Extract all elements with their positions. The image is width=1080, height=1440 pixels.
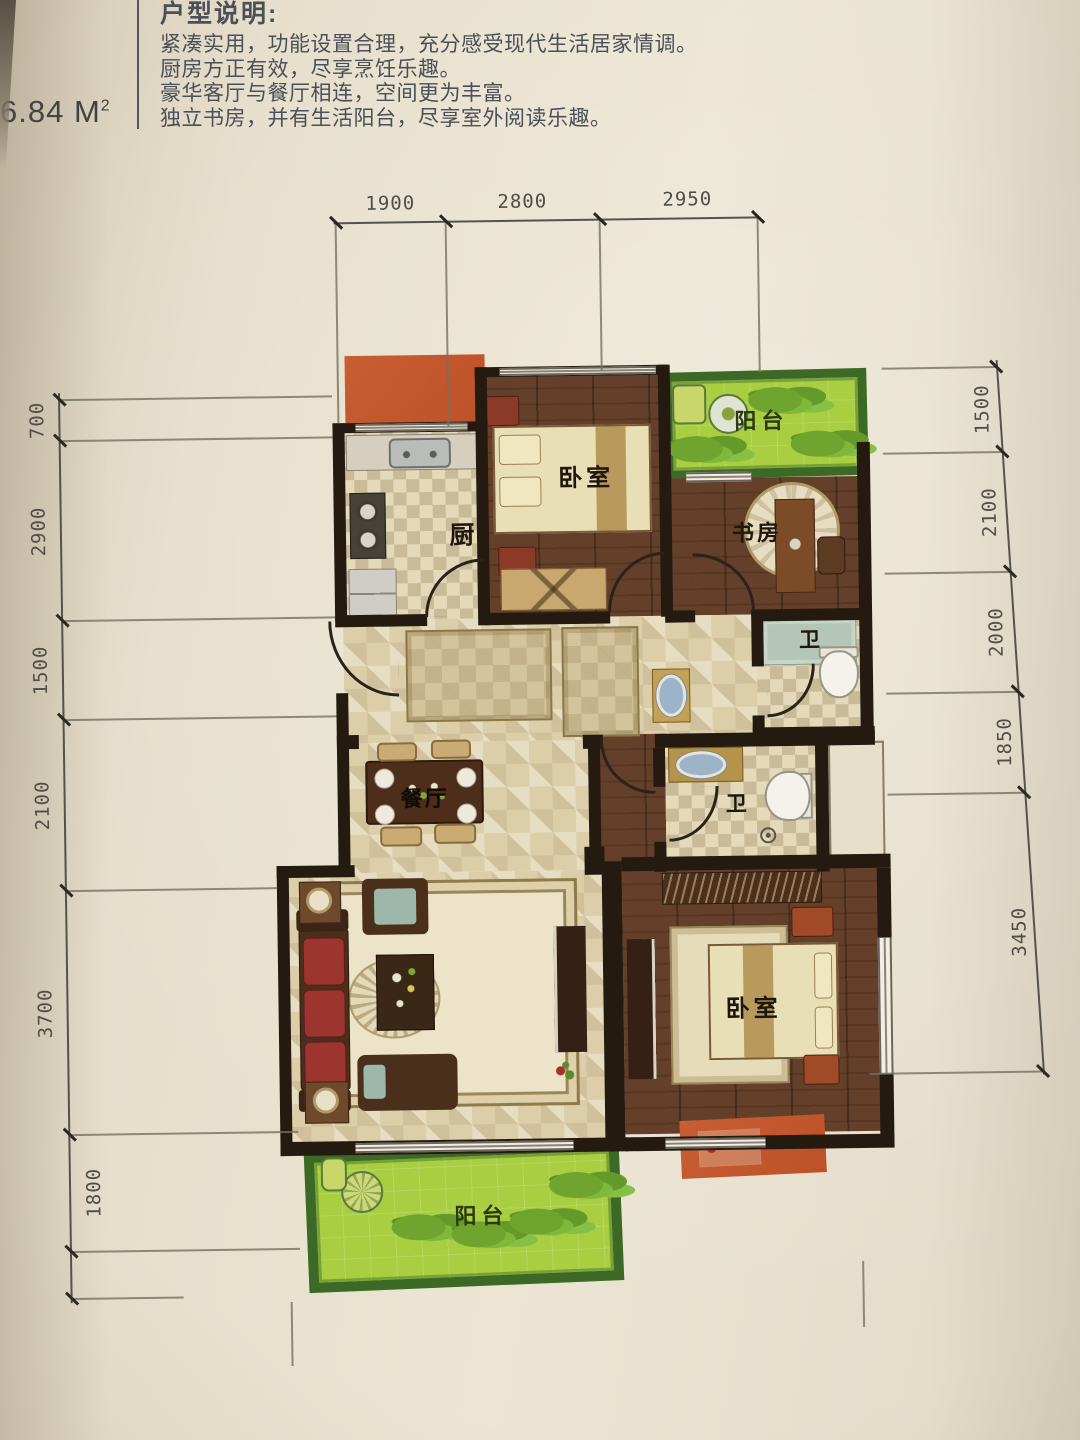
window [355,422,467,432]
label-dining: 餐厅 [379,780,469,813]
ac-platform-top [344,354,485,428]
description-line: 豪华客厅与餐厅相连，空间更为丰富。 [160,82,1040,107]
dim-extension-line [888,792,1026,796]
label-balcony-top: 阳台 [706,403,816,437]
balcony-chair [672,384,707,424]
pillow [815,1006,834,1048]
dining-chair [377,742,417,762]
area-superscript: 2 [101,98,111,115]
dim-extension-line [73,1248,300,1253]
dim-extension-line [291,1302,294,1366]
dim-top: 2800 [480,190,564,213]
desk-chair [817,536,846,574]
window [665,1137,765,1148]
label-bath-bottom: 卫 [714,787,759,818]
dim-top: 2950 [645,188,729,211]
description-line: 紧凑实用，功能设置合理，充分感受现代生活居家情调。 [160,33,1040,58]
wall-segment [588,747,602,862]
label-bedroom-top: 卧室 [536,457,636,493]
wall-segment [485,611,610,625]
dim-right: 1850 [993,700,1016,784]
wash-basin [656,674,687,716]
tv-cabinet [553,926,587,1052]
dresser [500,568,607,611]
dim-extension-line [870,1070,1045,1074]
dining-chair [380,826,422,847]
window [686,472,751,483]
tv-cabinet [627,939,657,1079]
nightstand [483,396,519,426]
dim-extension-line [74,1297,184,1301]
hall-tile-rug [405,628,552,722]
floor-plan: 厨 卧室 阳台 书房 卫 餐厅 卫 卧室 阳台 1900 2800 2950 7… [269,346,902,1305]
sofa-cushion [304,1041,347,1086]
dim-extension-line [71,1131,298,1136]
wall-segment [277,865,355,878]
dim-extension-line [757,218,761,372]
dim-extension-line [66,715,337,721]
description-line: 厨房方正有效，尽享烹饪乐趣。 [160,58,1040,83]
dim-extension-line [62,436,333,442]
dim-extension-line [862,1261,865,1327]
description-title: 户型说明: [160,0,1040,30]
dim-left: 700 [26,378,49,462]
header-divider [137,0,139,129]
coffee-table [376,954,435,1031]
wardrobe [662,871,822,905]
label-study: 书房 [717,515,797,548]
nightstand [803,1054,839,1084]
dim-right: 2100 [978,470,1001,554]
hall-tile-rug [561,626,640,737]
dim-right: 1500 [971,367,994,451]
wall-segment [336,693,350,868]
utility-shaft [828,741,886,872]
dim-extension-line [883,451,1004,455]
nightstand [791,906,833,937]
photo-corner-shadow [0,0,16,170]
toilet [819,650,860,699]
kitchen-sink [389,438,451,469]
dim-right: 2000 [985,590,1008,674]
plant [551,1058,577,1086]
label-kitchen: 厨 [432,515,492,552]
wall-segment [665,610,695,622]
dim-right: 3450 [1008,890,1031,974]
floorplan-description: 户型说明: 紧凑实用，功能设置合理，充分感受现代生活居家情调。 厨房方正有效，尽… [160,0,1040,131]
dim-extension-line [335,224,340,423]
sofa-cushion [303,937,346,986]
dimension-line-left [58,393,73,1303]
label-balcony-bottom: 阳台 [431,1198,531,1231]
dim-left: 2100 [31,763,54,847]
wall-segment [751,609,764,666]
dim-extension-line [599,221,603,371]
wall-segment [602,861,626,1149]
label-bedroom-bottom: 卧室 [703,988,803,1024]
kitchen-stove [349,493,386,559]
brochure-page: 6.84 M2 户型说明: 紧凑实用，功能设置合理，充分感受现代生活居家情调。 … [0,0,1080,1440]
area-unit: M [64,94,100,129]
dim-left: 1500 [29,628,52,712]
wall-segment [815,741,830,871]
balcony-chair [321,1157,347,1191]
dining-chair [434,823,476,844]
sofa-cushion [303,989,346,1038]
kitchen-fridge [348,568,397,619]
dim-extension-line [885,571,1012,575]
wall-segment [877,868,892,938]
dim-extension-line [61,395,332,401]
dimension-line-top [334,216,760,224]
dim-extension-line [886,691,1019,695]
unit-area: 6.84 M2 [0,94,111,130]
dim-left: 2900 [27,489,50,573]
wall-segment [337,735,359,749]
pillow [814,952,833,998]
entry-door-arc [328,620,399,697]
window [878,938,894,1074]
armchair-cushion [374,888,416,925]
wall-segment [753,608,861,622]
dim-extension-line [64,616,335,622]
dim-left: 1800 [83,1151,106,1235]
pillow [499,476,541,507]
chaise-pillow [363,1065,385,1099]
pillow [499,434,541,465]
description-line: 独立书房，并有生活阳台，尽享室外阅读乐趣。 [160,107,1040,132]
wall-segment [584,847,604,875]
label-bath-top: 卫 [789,623,829,654]
toilet [764,771,811,822]
dim-left: 3700 [34,971,57,1055]
dim-top: 1900 [348,192,432,215]
dim-extension-line [68,887,277,892]
dining-chair [431,739,471,759]
wall-segment [857,442,874,738]
